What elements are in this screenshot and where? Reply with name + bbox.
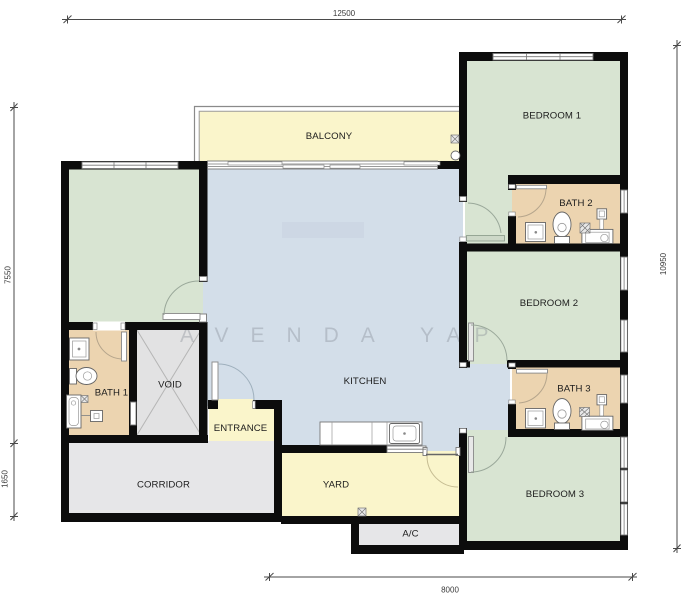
svg-text:VOID: VOID [158,380,182,391]
svg-text:KITCHEN: KITCHEN [344,376,387,387]
svg-text:10950: 10950 [659,252,668,275]
svg-text:A/C: A/C [402,529,418,540]
svg-text:7550: 7550 [4,266,13,284]
svg-text:1650: 1650 [1,470,10,488]
svg-text:YARD: YARD [323,480,349,491]
svg-text:BEDROOM 1: BEDROOM 1 [523,111,581,122]
svg-text:AVENDA: AVENDA [180,324,397,347]
svg-text:BEDROOM 2: BEDROOM 2 [520,298,578,309]
svg-text:8000: 8000 [441,586,459,595]
svg-text:BATH 2: BATH 2 [559,198,592,209]
svg-text:ENTRANCE: ENTRANCE [214,423,268,434]
svg-text:BATH 3: BATH 3 [557,384,590,395]
svg-text:BATH 1: BATH 1 [95,388,128,399]
svg-text:CORRIDOR: CORRIDOR [137,480,190,491]
svg-text:BALCONY: BALCONY [306,131,353,142]
svg-text:12500: 12500 [333,9,356,18]
svg-text:BEDROOM 3: BEDROOM 3 [526,489,584,500]
